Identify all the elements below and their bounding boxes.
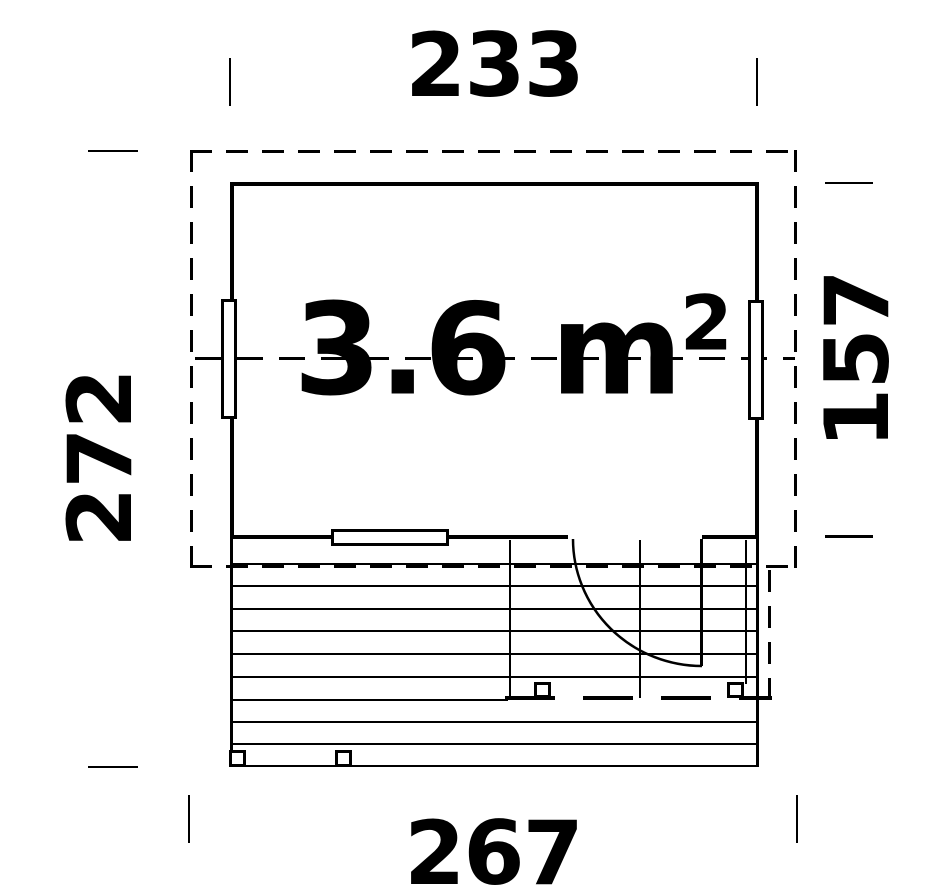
area-value: 3.6 (293, 276, 509, 424)
tick-right-dim-bottom (825, 535, 873, 538)
area-unit: m (509, 276, 680, 424)
area-label: 3.6 m2 (293, 287, 732, 414)
tick-left-dim-bottom (88, 766, 138, 768)
dimension-label-left: 272 (57, 370, 145, 548)
tick-right-dim-top (825, 182, 873, 184)
dimension-label-top: 233 (230, 22, 758, 110)
tick-left-dim-top (88, 150, 138, 152)
dimension-label-bottom: 267 (189, 810, 797, 894)
dimension-label-right: 157 (814, 271, 902, 449)
area-exponent: 2 (680, 286, 733, 362)
floor-plan-canvas: 233 267 272 157 3.6 m2 (0, 0, 936, 894)
